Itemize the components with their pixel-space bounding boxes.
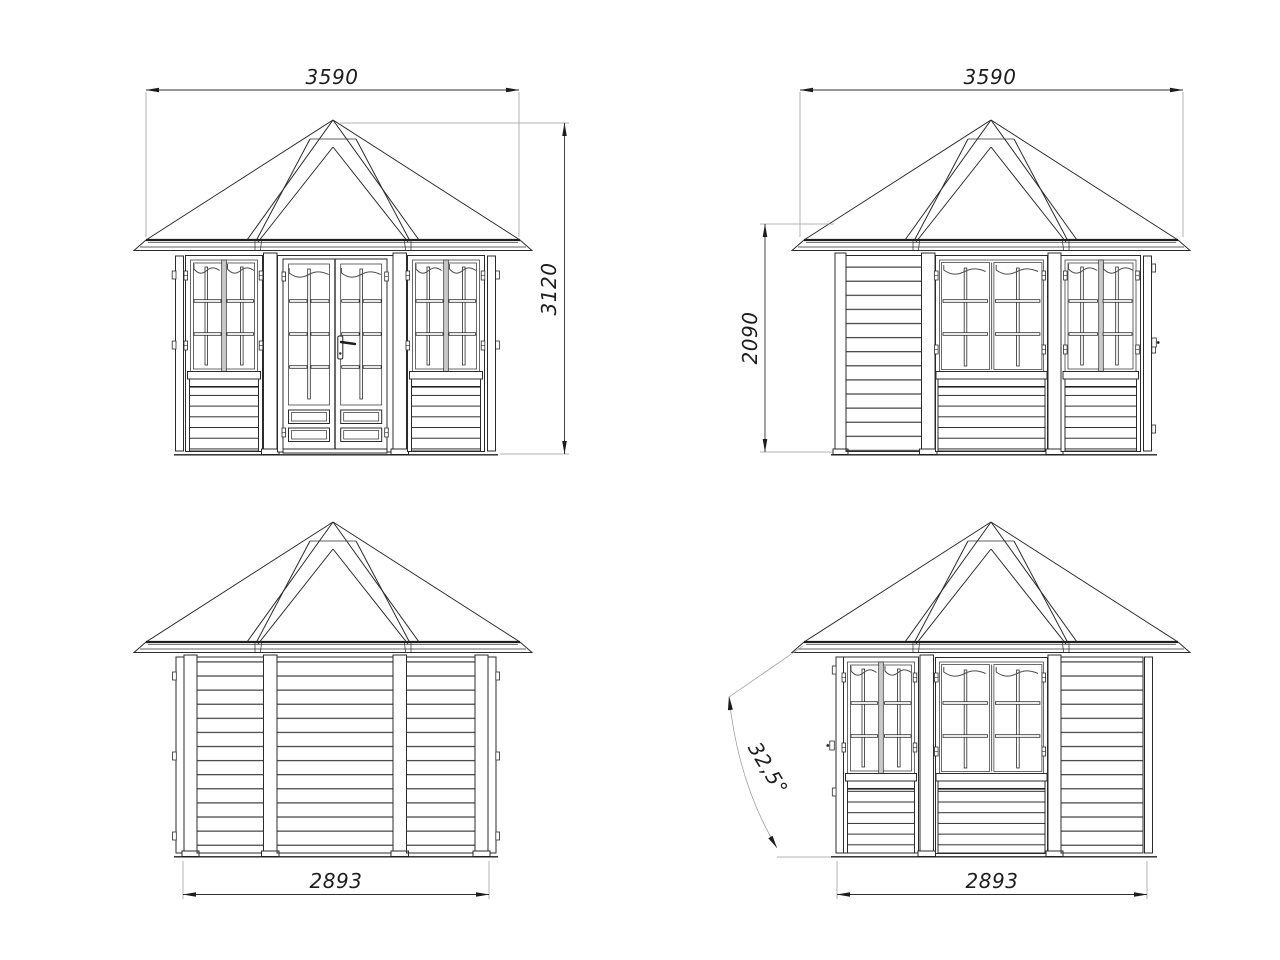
front-left-window [184,256,263,452]
front-height-label: 3120 [537,263,561,316]
front-elevation-view: 3590 3120 [134,65,569,455]
corner-post [264,253,278,453]
back-body [173,655,500,857]
front-width-dimension: 3590 [146,65,519,237]
siding-panel [1061,657,1143,853]
angle-arrow-top [728,696,733,710]
drawing-canvas: 3590 3120 [0,0,1280,960]
door-handle-profile [830,741,835,750]
front-double-door [278,256,394,454]
roof-back [134,522,532,653]
siding-panel [846,256,922,452]
side-elevation-right-view: 3590 2090 [738,65,1190,455]
siding-panel [197,657,264,853]
front-left-corner-facet [176,256,184,451]
roof-front [134,120,532,251]
back-width-dimension: 2893 [183,861,489,899]
side-left-width-label: 2893 [966,869,1019,893]
side-left-width-dimension: 2893 [837,861,1147,899]
front-right-corner-facet [488,256,496,451]
side-right-height-dimension: 2090 [738,224,834,452]
side-right-end-window [1061,256,1141,452]
door-edge-profile [826,657,844,853]
side-elevation-left-view: 32,5° [728,522,1190,899]
front-right-window [406,256,485,452]
side-left-end-window [842,657,919,853]
side-right-body [831,253,1160,455]
roof-side-right [792,120,1190,251]
door-edge-profile [1144,256,1160,451]
side-right-height-label: 2090 [738,312,762,365]
gazebo-technical-drawing: 3590 3120 [0,0,1280,960]
siding-below-window [190,387,259,451]
angle-arrow-bottom [768,836,777,848]
roof-pitch-angle-dimension: 32,5° [728,646,838,857]
back-width-label: 2893 [310,869,363,893]
side-right-middle-window [935,256,1048,452]
side-left-body [826,655,1157,857]
siding-panel [407,657,476,853]
roof-side-left [792,522,1190,653]
front-width-label: 3590 [306,65,359,89]
door-handle-profile [1152,338,1157,347]
side-left-middle-window [935,658,1048,854]
side-right-width-label: 3590 [964,65,1017,89]
roof-pitch-label: 32,5° [743,738,793,799]
back-elevation-view: 2893 [134,522,532,899]
corner-facet [1145,657,1153,853]
front-body [172,253,499,455]
corner-post [393,253,407,453]
side-right-width-dimension: 3590 [800,65,1183,237]
siding-panel [277,657,393,853]
